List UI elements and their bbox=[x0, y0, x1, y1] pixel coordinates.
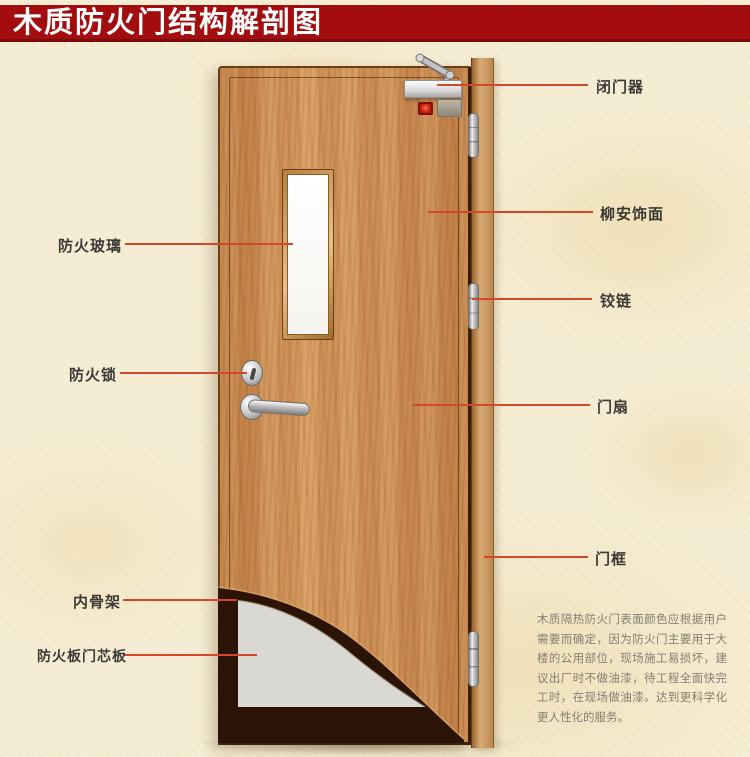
label-inner-skeleton: 内骨架 bbox=[73, 591, 121, 612]
callout-line-door-frame bbox=[484, 556, 588, 558]
label-veneer: 柳安饰面 bbox=[600, 203, 664, 224]
callout-line-veneer bbox=[428, 211, 593, 213]
label-door-leaf: 门扇 bbox=[597, 396, 629, 417]
glass-pane bbox=[287, 174, 329, 335]
label-hinge: 铰链 bbox=[600, 290, 632, 311]
callout-line-door-leaf bbox=[413, 404, 590, 406]
fire-glass-window bbox=[282, 169, 334, 340]
callout-line-core-board bbox=[123, 654, 257, 656]
label-fire-lock: 防火锁 bbox=[69, 364, 117, 385]
alarm-indicator bbox=[418, 102, 433, 115]
sensor-box bbox=[437, 99, 462, 117]
core-board-shape bbox=[238, 600, 426, 707]
title-banner: 木质防火门结构解剖图 bbox=[0, 5, 750, 42]
callout-line-fire-lock bbox=[120, 372, 247, 374]
door-closer bbox=[404, 80, 462, 98]
cutaway-section bbox=[218, 581, 464, 743]
label-fire-glass: 防火玻璃 bbox=[58, 235, 122, 256]
hinge-middle bbox=[468, 283, 479, 330]
page-title: 木质防火门结构解剖图 bbox=[0, 5, 750, 41]
keyhole-icon bbox=[250, 368, 257, 381]
label-core-board: 防火板门芯板 bbox=[37, 646, 127, 666]
callout-line-inner-skeleton bbox=[123, 599, 237, 601]
label-door-frame: 门框 bbox=[595, 548, 627, 569]
callout-line-door-closer bbox=[437, 84, 588, 86]
poster: 木质防火门结构解剖图 防火玻璃 防火锁 内骨架 bbox=[0, 0, 750, 757]
hinge-top bbox=[468, 113, 479, 158]
callout-line-hinge bbox=[472, 298, 592, 300]
hinge-bottom bbox=[468, 631, 479, 687]
callout-line-fire-glass bbox=[125, 243, 293, 245]
label-door-closer: 闭门器 bbox=[596, 76, 644, 97]
description-text: 木质隔热防火门表面颜色应根据用户需要而确定，因为防火门主要用于大楼的公用部位，现… bbox=[537, 611, 727, 728]
